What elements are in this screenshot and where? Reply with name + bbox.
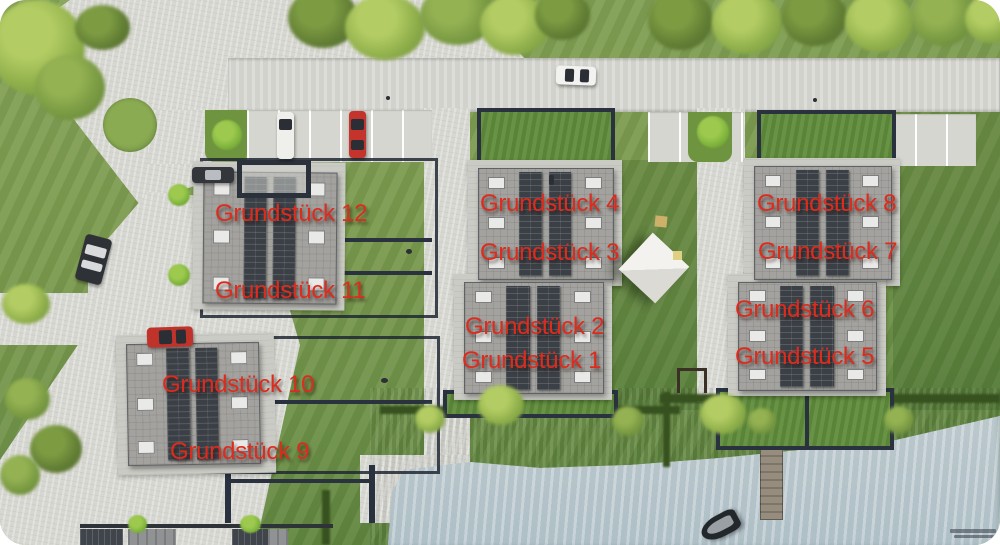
roof-window: [574, 291, 591, 303]
bush: [168, 184, 190, 206]
street-lamp: [549, 175, 554, 185]
watermark: [950, 529, 998, 541]
plot-label-grundstueck-8: Grundstück 8: [757, 190, 896, 218]
plot-divider-line: [369, 465, 375, 523]
roof-window: [765, 175, 782, 187]
pedestrian: [381, 378, 388, 383]
car-window: [351, 119, 364, 129]
car-roof: [205, 170, 222, 180]
roof-window: [309, 182, 326, 196]
tree: [612, 406, 644, 436]
tree: [35, 55, 105, 120]
roof-window: [847, 330, 864, 342]
watermark-line: [954, 535, 994, 538]
bush: [697, 116, 729, 148]
tree: [75, 5, 130, 50]
pedestrian: [406, 249, 412, 254]
car-red-parked: [349, 111, 366, 158]
car-window: [279, 119, 292, 130]
green-traffic-island: [103, 98, 157, 152]
plot-label-grundstueck-10: Grundstück 10: [162, 371, 314, 399]
car-roof: [85, 244, 107, 258]
bush: [168, 264, 190, 286]
roof-window: [136, 353, 153, 366]
roof-window: [138, 441, 155, 454]
watermark-line: [950, 529, 996, 533]
street-lamp: [386, 96, 390, 100]
parking-row-west: [247, 110, 432, 162]
tree: [5, 378, 50, 420]
roof-window: [231, 351, 248, 364]
roof-window: [585, 217, 602, 229]
sandbox-toy: [673, 251, 682, 260]
fence-line-south: [80, 524, 333, 528]
tree: [748, 408, 776, 434]
roof-window: [137, 397, 154, 410]
plot-label-grundstueck-4: Grundstück 4: [480, 190, 619, 218]
plot-label-grundstueck-1: Grundstück 1: [462, 347, 601, 375]
car-window: [351, 140, 364, 149]
roof-window: [862, 216, 879, 228]
roof-window: [749, 330, 766, 342]
tree: [478, 385, 524, 425]
bush: [212, 120, 242, 150]
car-window: [565, 68, 575, 82]
hedge-vertical-south: [322, 490, 330, 545]
hedge-vertical-center: [663, 392, 670, 467]
plot-label-grundstueck-3: Grundstück 3: [480, 239, 619, 267]
bush: [240, 515, 261, 533]
tree: [0, 455, 40, 495]
sandbox-toy: [654, 215, 667, 227]
roof-window: [213, 230, 230, 244]
plot-divider-line: [335, 271, 432, 275]
plot-divider-line: [225, 465, 231, 523]
plot-divider-line: [805, 392, 809, 446]
road-north: [228, 58, 1000, 112]
car-window: [158, 330, 172, 344]
building-row-south: [80, 529, 123, 545]
street-lamp: [813, 98, 817, 102]
plot-divider-line: [225, 479, 375, 483]
car-roof: [81, 259, 103, 272]
plot-label-grundstueck-12: Grundstück 12: [215, 200, 367, 228]
car-dark: [192, 167, 234, 183]
plot-label-grundstueck-9: Grundstück 9: [170, 438, 309, 466]
site-plan-aerial-view: Grundstück 1 Grundstück 2 Grundstück 3 G…: [0, 0, 1000, 545]
roof-window: [214, 182, 231, 196]
car-window: [580, 69, 589, 83]
plot-label-grundstueck-6: Grundstück 6: [735, 296, 874, 324]
roof-window: [488, 217, 505, 229]
roof-window: [488, 177, 505, 189]
tree: [884, 406, 914, 434]
building-row-south: [268, 529, 288, 545]
plot-label-grundstueck-7: Grundstück 7: [758, 238, 897, 266]
tree: [415, 405, 445, 433]
roof-window: [862, 175, 879, 187]
bush: [128, 515, 147, 533]
paving-parking-west: [148, 110, 208, 164]
carport-frame: [237, 160, 311, 198]
car-red: [147, 326, 194, 348]
plot-divider-line: [260, 400, 432, 404]
roof-window: [475, 291, 492, 303]
roof-window: [308, 231, 325, 245]
roof-window: [765, 216, 782, 228]
car-white-parked: [277, 112, 294, 159]
roof-window: [585, 177, 602, 189]
plot-label-grundstueck-5: Grundstück 5: [735, 343, 874, 371]
plot-label-grundstueck-2: Grundstück 2: [465, 313, 604, 341]
plot-divider-line: [335, 238, 432, 242]
car-window: [175, 329, 186, 343]
bush-large: [2, 284, 50, 324]
playground-frame: [677, 368, 707, 393]
car-white: [556, 65, 597, 85]
tree: [700, 394, 746, 434]
plot-label-grundstueck-11: Grundstück 11: [215, 277, 365, 305]
